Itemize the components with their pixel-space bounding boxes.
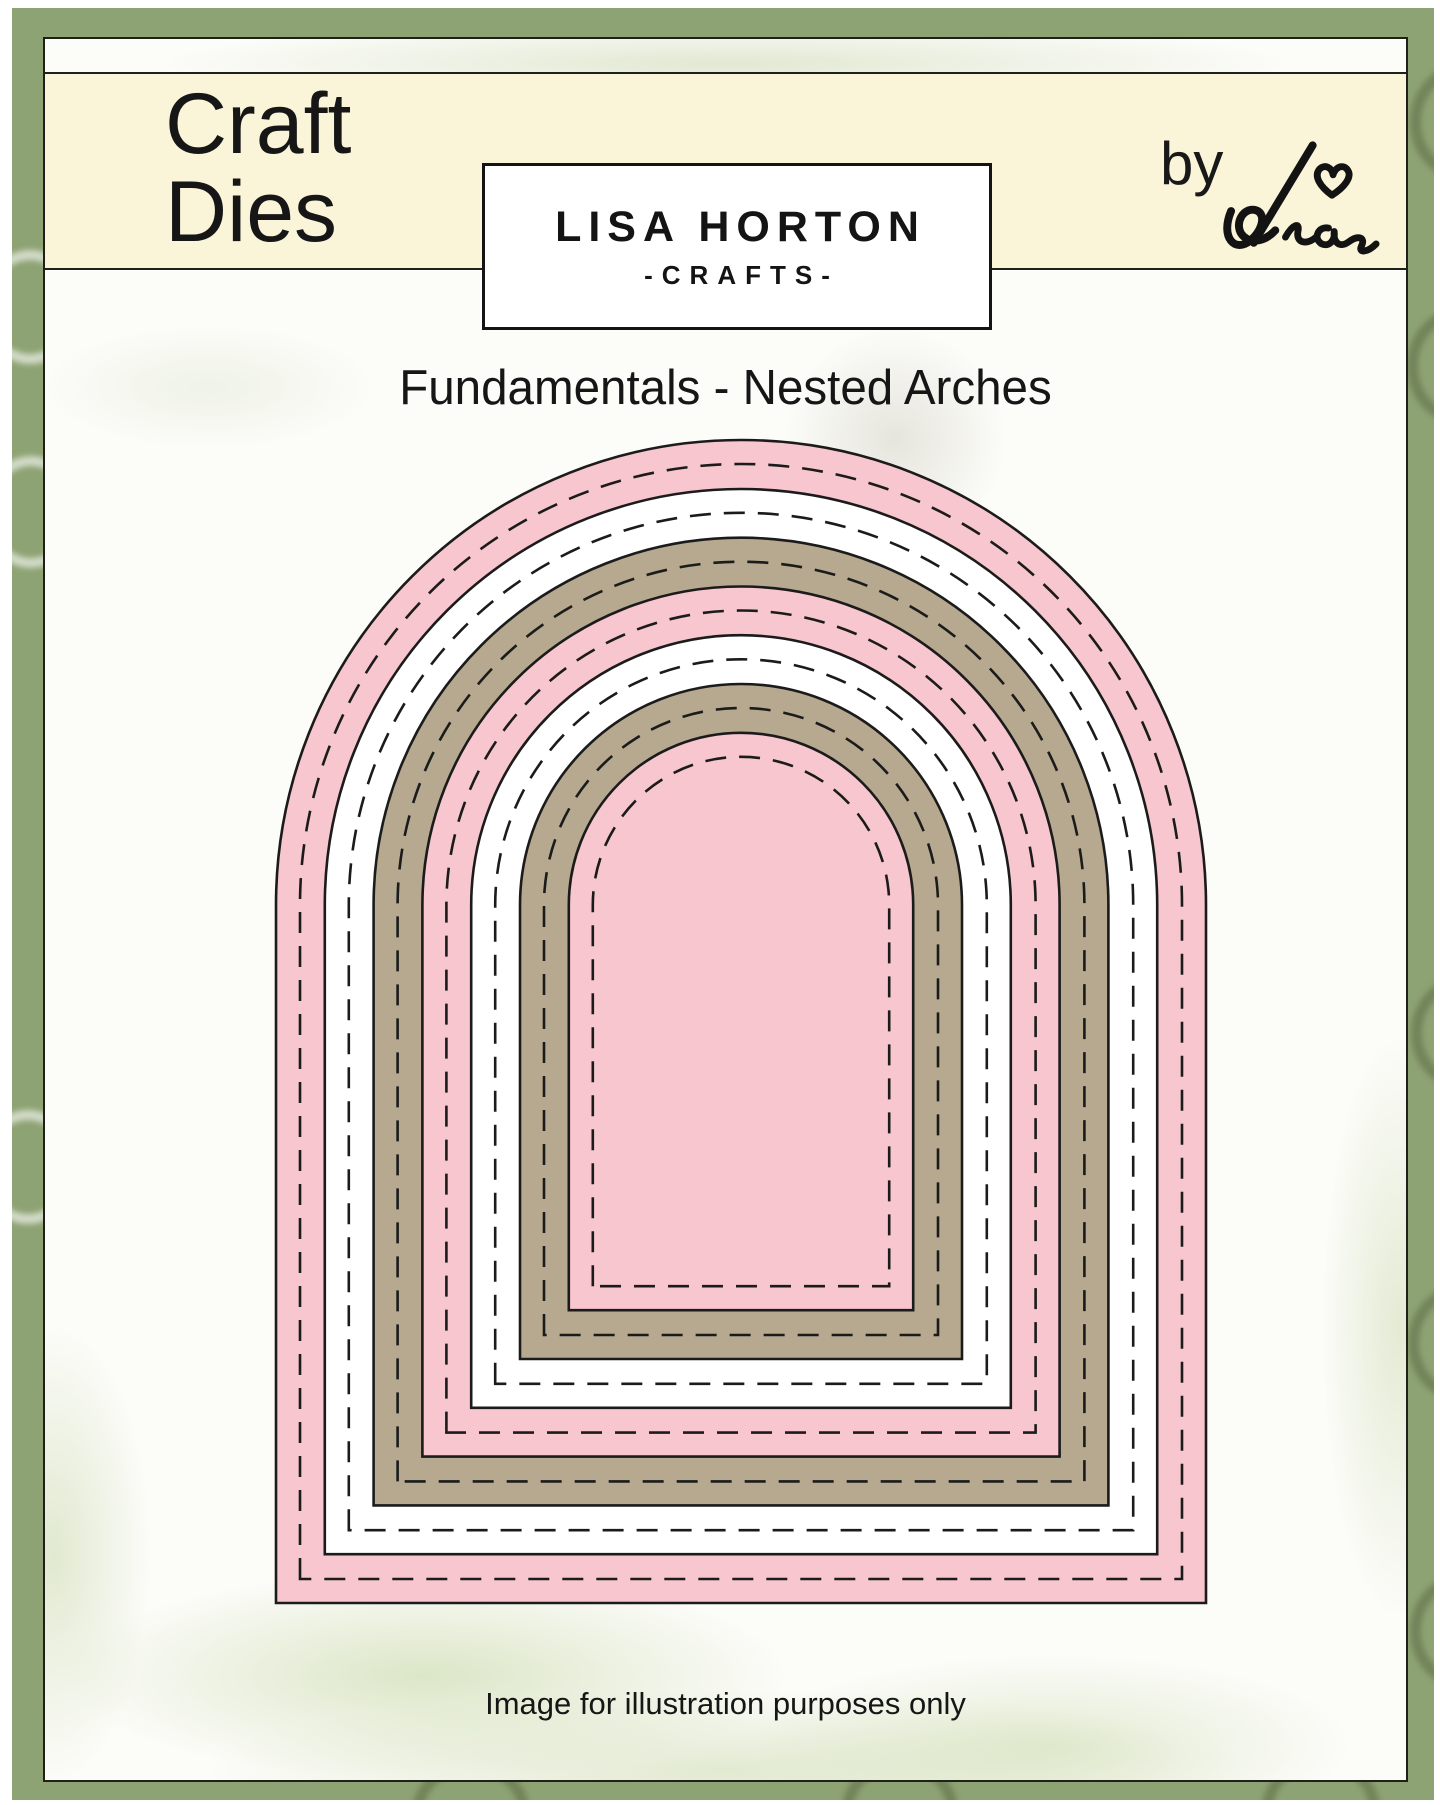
brand-name: LISA HORTON <box>555 203 926 252</box>
die-layer-4 <box>422 587 1059 1457</box>
ring-shadow-icon <box>1411 976 1434 1090</box>
product-title: Fundamentals - Nested Arches <box>65 360 1385 416</box>
brand-tagline: -CRAFTS- <box>644 260 839 291</box>
ring-shadow-icon <box>1410 63 1434 181</box>
die-layer-7 <box>569 733 913 1310</box>
die-layer-6 <box>520 684 962 1359</box>
die-layer-2-stitch-line <box>349 513 1133 1530</box>
product-type-line2: Dies <box>165 168 351 256</box>
lisa-signature <box>1222 137 1392 267</box>
die-layer-3 <box>374 538 1109 1506</box>
signature-heart-icon <box>1317 167 1349 196</box>
ring-shadow-icon <box>1410 1574 1434 1688</box>
die-layer-5-stitch-line <box>495 659 987 1384</box>
die-layer-2 <box>325 489 1157 1554</box>
green-border-frame: Craft Dies LISA HORTON -CRAFTS- by Funda… <box>12 8 1434 1800</box>
ring-shadow-icon <box>1408 1284 1434 1402</box>
die-layer-3-stitch-line <box>398 562 1085 1482</box>
product-type-line1: Craft <box>165 80 351 168</box>
die-layer-1 <box>276 440 1206 1603</box>
byline-prefix: by <box>1160 129 1223 198</box>
signature-isa-stroke <box>1285 225 1376 251</box>
product-image-page: Craft Dies LISA HORTON -CRAFTS- by Funda… <box>0 0 1440 1805</box>
die-layer-5 <box>471 635 1011 1408</box>
die-layer-6-stitch-line <box>544 708 938 1335</box>
watercolor-sheet: Craft Dies LISA HORTON -CRAFTS- by Funda… <box>43 37 1408 1782</box>
ring-shadow-icon <box>1407 308 1434 424</box>
product-type-label: Craft Dies <box>165 80 351 256</box>
die-layer-1-stitch-line <box>300 464 1182 1579</box>
die-layer-4-stitch-line <box>446 611 1035 1433</box>
disclaimer-text: Image for illustration purposes only <box>45 1686 1406 1722</box>
die-layer-7-stitch-line <box>593 757 889 1286</box>
brand-logo-box: LISA HORTON -CRAFTS- <box>482 163 992 330</box>
